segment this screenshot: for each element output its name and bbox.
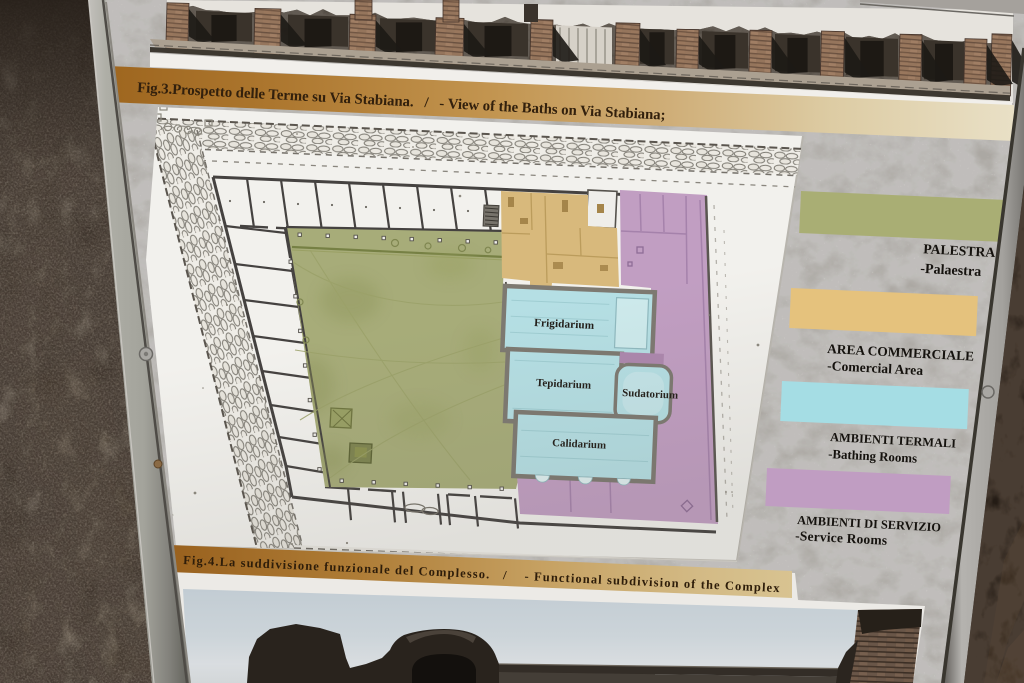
svg-text:-Palaestra: -Palaestra (920, 261, 982, 280)
